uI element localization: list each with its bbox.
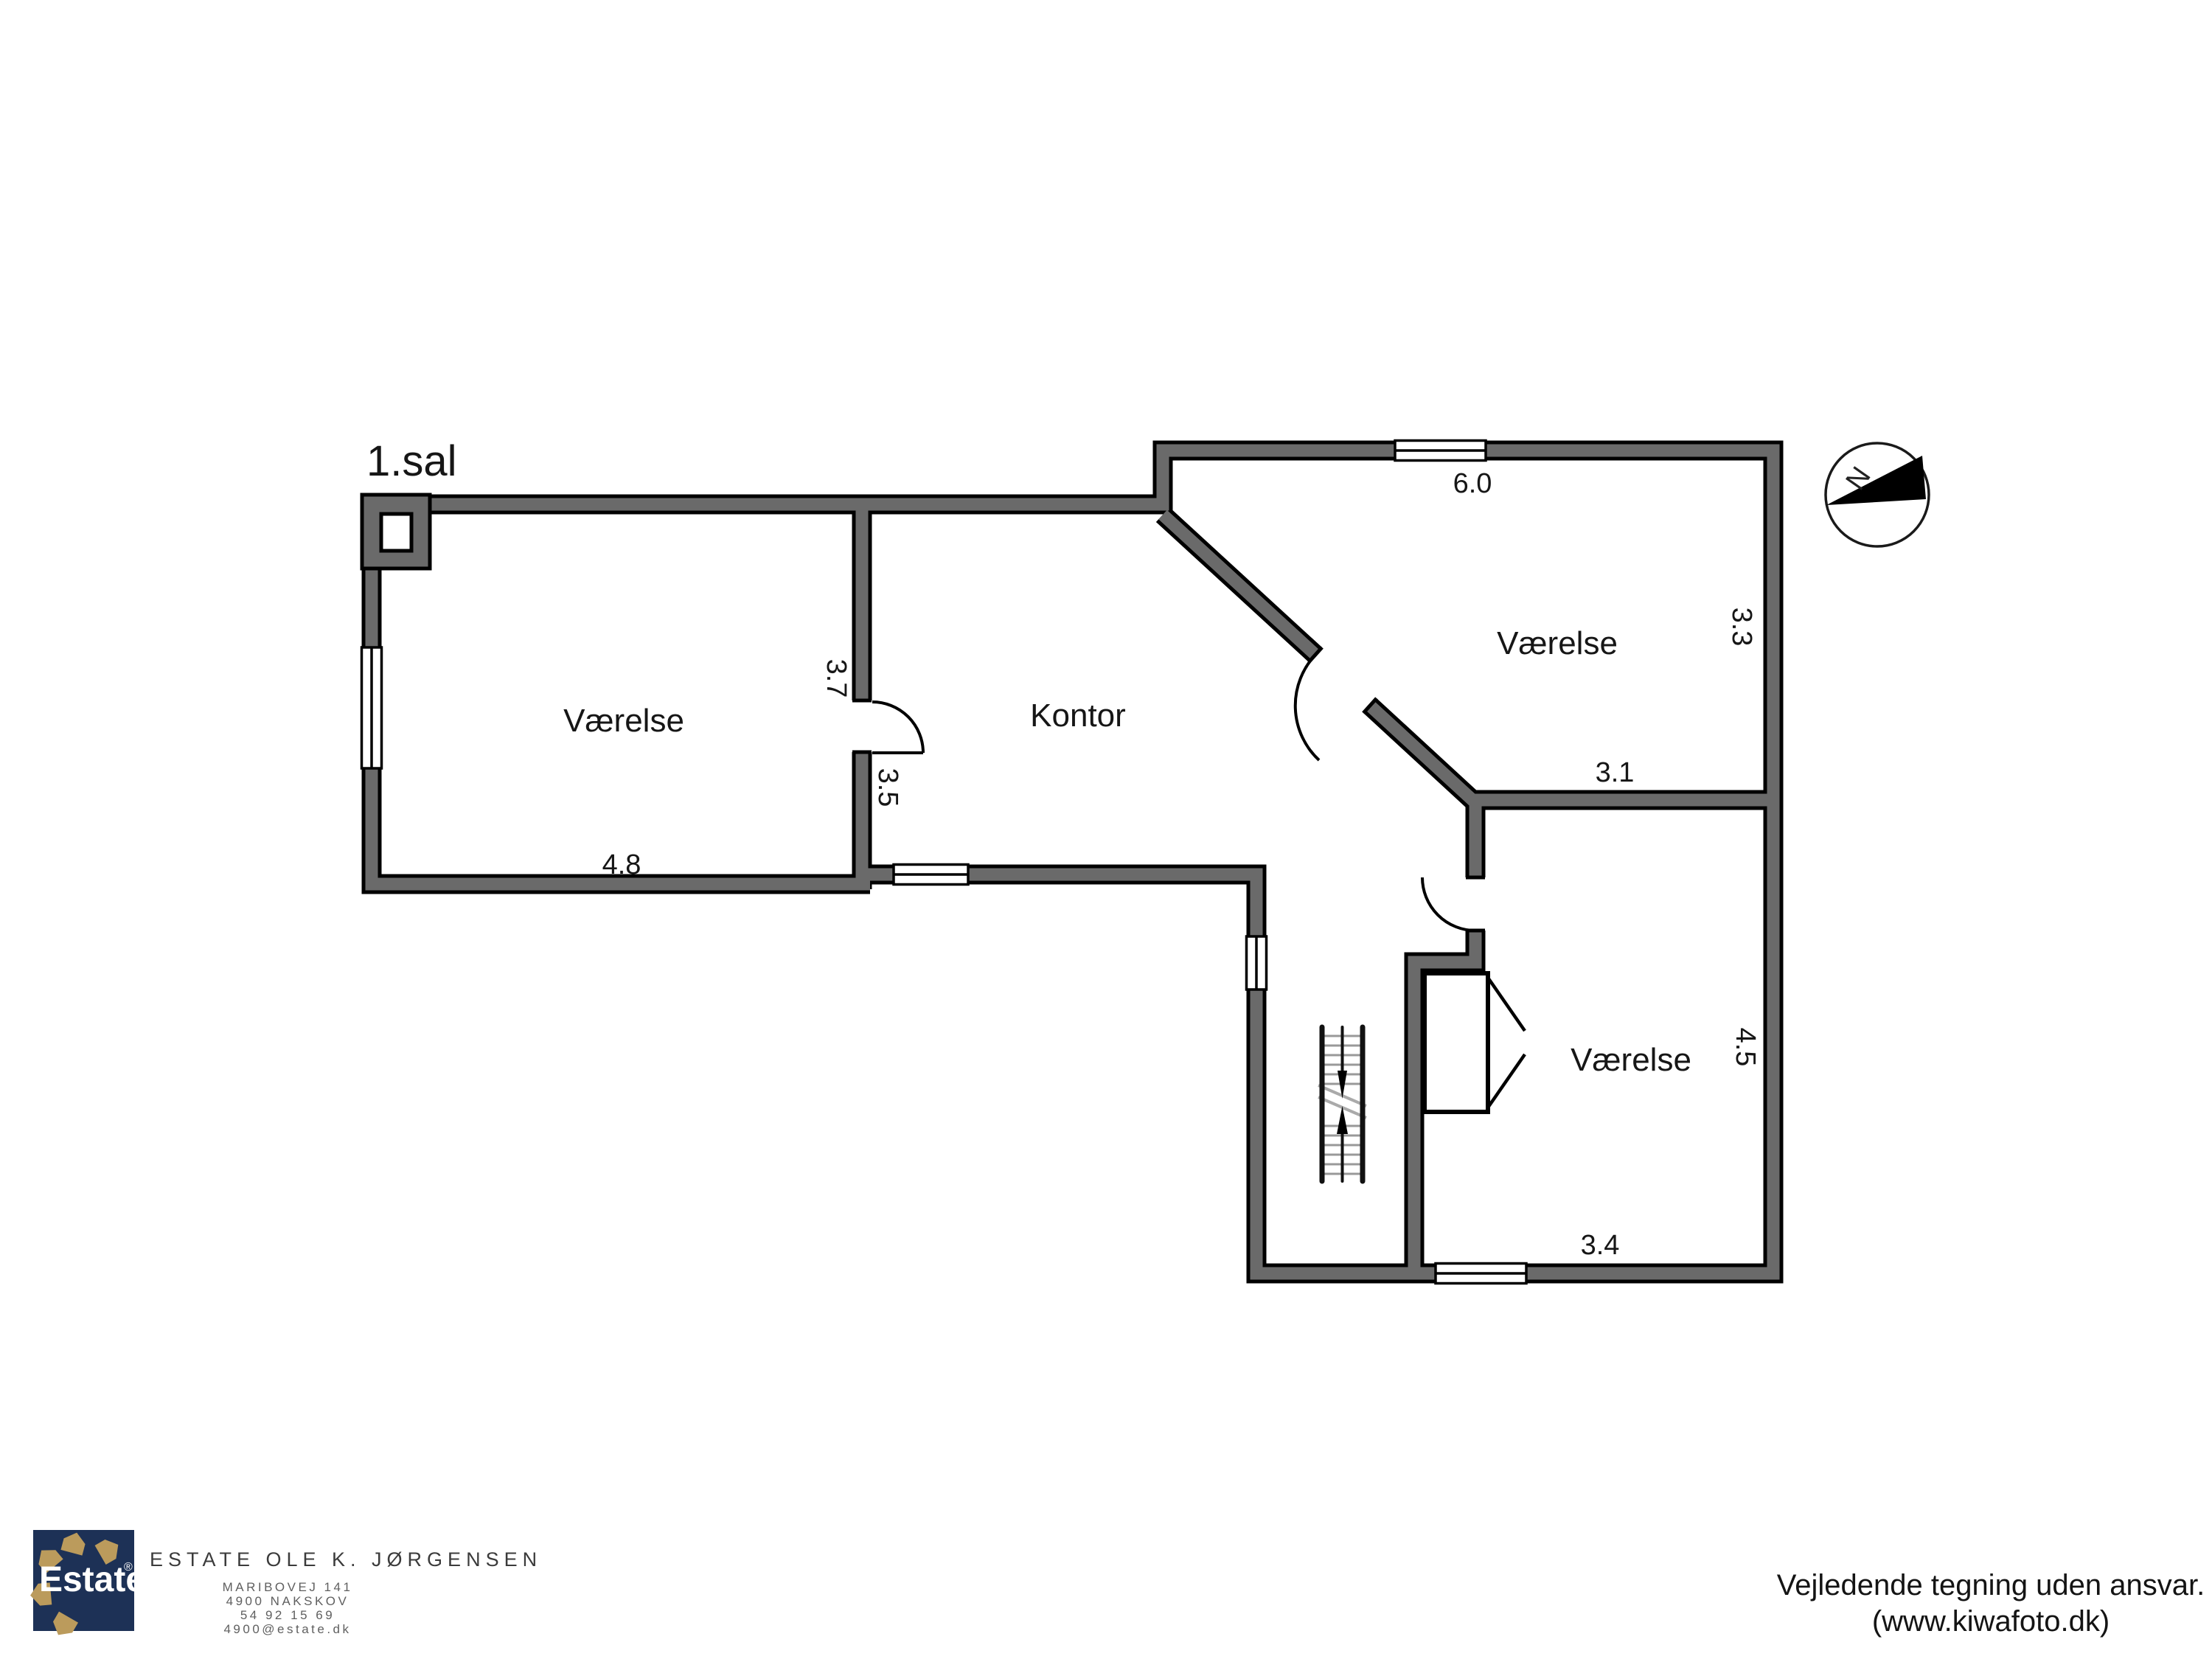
walls [372,451,1777,1277]
stair-rails [1322,1027,1363,1181]
agency-phone: 54 92 15 69 [240,1608,335,1622]
estate-registered-mark: ® [124,1561,133,1573]
floor-title: 1.sal [366,437,457,485]
window-left-wall [362,647,382,768]
dim-3-1: 3.1 [1596,757,1635,788]
outer-walls-outline [372,451,1773,1273]
floorplan-page: N 1.sal Værelse Kontor Værelse Værelse 4… [0,0,2212,1659]
door-diagonal [1295,655,1319,760]
agency-name: ESTATE OLE K. JØRGENSEN [150,1548,542,1571]
closet [1425,973,1525,1112]
door-jambs [852,647,1485,931]
plan-labels: 1.sal Værelse Kontor Værelse Værelse 4.8… [366,437,1761,1261]
windows [362,441,1527,1284]
estate-logo: Estate ® [29,1530,145,1641]
window-bottom-right [1436,1264,1526,1284]
stairs [1318,1027,1366,1181]
agency-email: 4900@estate.dk [223,1622,351,1636]
dim-3-7: 3.7 [821,659,852,698]
dim-6-0: 6.0 [1453,468,1492,499]
agency-info: ESTATE OLE K. JØRGENSEN MARIBOVEJ 141 49… [150,1548,542,1636]
dim-3-4: 3.4 [1581,1230,1620,1261]
dim-4-8: 4.8 [602,849,641,880]
floorplan-canvas: N 1.sal Værelse Kontor Værelse Værelse 4… [0,0,2212,1659]
stair-direction-arrows [1337,1071,1348,1134]
disclaimer: Vejledende tegning uden ansvar. (www.kiw… [1777,1569,2205,1638]
disclaimer-line1: Vejledende tegning uden ansvar. [1777,1569,2205,1601]
chimney-niche [362,495,430,568]
dim-3-5: 3.5 [872,768,903,807]
diagonal-wall [1163,515,1777,800]
doors [872,655,1475,931]
dim-3-3: 3.3 [1726,608,1757,647]
room-label-bottom-right: Værelse [1571,1042,1691,1078]
disclaimer-line2: (www.kiwafoto.dk) [1872,1605,2110,1638]
agency-address-line2: 4900 NAKSKOV [226,1594,349,1608]
window-top-right [1395,441,1486,461]
north-compass-icon: N [1826,443,1929,546]
window-bottom-left [894,865,968,885]
window-hall-left [1247,936,1267,990]
agency-address-line1: MARIBOVEJ 141 [223,1580,353,1594]
dim-4-5: 4.5 [1730,1028,1761,1067]
diagonal-wall-outline [1163,515,1777,800]
room-label-left: Værelse [563,703,684,739]
outer-walls [372,451,1773,1273]
door-hall-bottom-room [1422,877,1475,931]
room-label-office: Kontor [1030,698,1126,734]
door-left-room [872,702,923,753]
room-label-top-right: Værelse [1497,625,1618,661]
